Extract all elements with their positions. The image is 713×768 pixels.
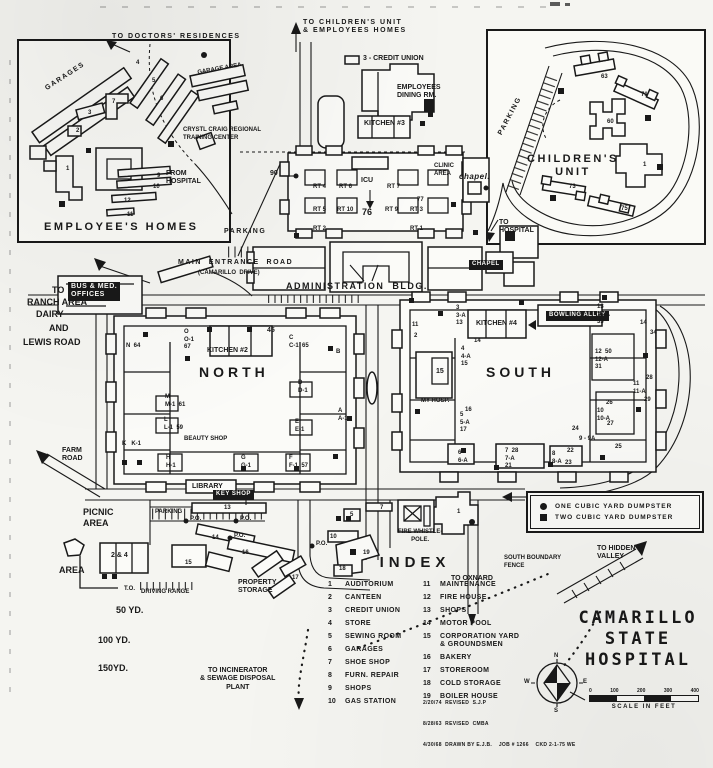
index-item-label: FURN. REPAIR (345, 672, 420, 680)
label-administration-bldg: ADMINISTRATION BLDG. (286, 281, 428, 292)
map-label: F F-1 57 (289, 455, 308, 470)
map-label: 4 4-A 15 (461, 346, 471, 369)
map-label: 26 (606, 400, 613, 408)
map-label: 25 (615, 444, 622, 452)
map-label: M M-1 61 (165, 394, 185, 409)
index-column-1: 1AUDITORIUM2CANTEEN3CREDIT UNION4STORE5S… (328, 581, 420, 711)
index-item: 5SEWING ROOM (328, 633, 420, 641)
label-driving-range: DRIVING RANGE (141, 589, 189, 597)
map-label: 8 8-A (552, 451, 562, 466)
map-label: 11 11-A (633, 381, 646, 396)
label-50yd: 50 YD. (116, 605, 143, 616)
hospital-site-map: TO DOCTORS' RESIDENCESGARAGESGARAGE AREA… (0, 0, 713, 768)
label-bus-med-offices: BUS & MED. OFFICES (68, 282, 120, 301)
map-label: 15 (436, 368, 444, 376)
index-item-number: 17 (423, 667, 438, 675)
map-label: 11 (127, 212, 133, 220)
index-item-number: 7 (328, 659, 343, 667)
map-label: B (336, 349, 340, 357)
label-kitchen-3: KITCHEN #3 (364, 120, 405, 128)
map-label: 27 (607, 421, 614, 429)
map-label: 28 (646, 375, 653, 383)
map-label: TO (52, 285, 64, 296)
map-label: 77 (417, 197, 424, 205)
map-label: T.O. (124, 586, 135, 594)
label-my-hosp: MY HOSP. (421, 398, 449, 406)
label-area: AREA (59, 565, 85, 576)
label-chapel: CHAPEL (469, 260, 503, 270)
map-title-line: HOSPITAL (564, 650, 712, 671)
map-label: RT 9 (385, 207, 398, 215)
map-label: P.O. (234, 533, 245, 541)
map-label: 5 (350, 512, 353, 520)
label-to-incinerator: TO INCINERATOR & SEWAGE DISPOSAL PLANT (200, 667, 275, 692)
map-label: 10 (330, 534, 337, 542)
map-label: D D-1 (298, 380, 308, 395)
index-item: 4STORE (328, 620, 420, 628)
index-item-number: 4 (328, 620, 343, 628)
label-employees-homes: EMPLOYEE'S HOMES (44, 221, 198, 234)
label-to-childrens-unit: TO CHILDREN'S UNIT & EMPLOYEES HOMES (303, 19, 407, 36)
index-item-label: BAKERY (440, 654, 527, 662)
label-icu: ICU (361, 177, 373, 185)
index-item-label: GARAGES (345, 646, 420, 654)
scale-tick: 300 (664, 688, 672, 694)
map-label: AND (49, 323, 69, 334)
map-label: 73 (569, 184, 576, 192)
map-label: RT 3 (410, 207, 423, 215)
map-label: 45 (267, 327, 275, 335)
index-item-number: 3 (328, 607, 343, 615)
revision-notes: 2/20/74 REVISED S.J.P 8/28/63 REVISED CM… (423, 686, 623, 763)
map-label: RT 2 (313, 226, 326, 234)
label-north-quad: NORTH (199, 364, 269, 381)
map-label: P.O. (240, 516, 251, 524)
index-item-number: 1 (328, 581, 343, 589)
map-label: 6 (160, 96, 163, 104)
map-label: 10 (153, 184, 160, 192)
index-item-number: 9 (328, 685, 343, 693)
index-item-label: AUDITORIUM (345, 581, 420, 589)
label-property-storage: PROPERTY STORAGE (238, 579, 277, 596)
map-label: P.O. (316, 541, 327, 549)
map-label: RT 7 (387, 184, 400, 192)
map-label: 4 (136, 60, 139, 68)
revision-line: 8/28/63 REVISED CMBA (423, 721, 623, 728)
map-label: 7 (112, 99, 115, 107)
index-item-label: FIRE HOUSE (440, 594, 527, 602)
label-picnic-area: PICNIC AREA (83, 507, 114, 528)
label-south-quad: SOUTH (486, 364, 555, 381)
map-label: 7 (380, 505, 383, 513)
map-label: H H-1 (166, 455, 176, 470)
label-main-entrance-road: MAIN ENTRANCE ROAD (178, 259, 293, 267)
index-item-label: SHOE SHOP (345, 659, 420, 667)
map-label: 9 (157, 173, 160, 181)
scale-tick: 200 (637, 688, 645, 694)
map-label: 3 3-A 13 (456, 305, 466, 328)
index-item: 7SHOE SHOP (328, 659, 420, 667)
index-item-label: SHOPS (345, 685, 420, 693)
label-garage-area: GARAGE AREA (197, 62, 242, 77)
index-heading: INDEX (330, 554, 500, 571)
index-item: 11MAINTENANCE (423, 581, 527, 589)
map-label: 14 (474, 338, 481, 346)
map-label: 3 (88, 110, 91, 118)
map-title-line: CAMARILLO (564, 608, 712, 629)
index-item-number: 5 (328, 633, 343, 641)
map-label: 5 5-A 17 (460, 412, 470, 435)
map-label: A A-1 (338, 408, 348, 423)
map-label: RT 4 (313, 184, 326, 192)
index-item-number: 13 (423, 607, 438, 615)
map-label: C C-1 65 (289, 335, 309, 350)
map-label: 11 (412, 322, 418, 330)
one-cubic-yard-dumpster-icon (540, 503, 547, 510)
map-label: 60 (607, 119, 614, 127)
map-title-line: STATE (564, 629, 712, 650)
map-label: PARKING (155, 509, 182, 517)
index-item-number: 8 (328, 672, 343, 680)
index-item-label: GAS STATION (345, 698, 420, 706)
label-parking-childrens: PARKING (497, 96, 524, 137)
label-lewis-road: LEWIS ROAD (23, 337, 81, 348)
map-label: RT 6 (339, 184, 352, 192)
label-100yd: 100 YD. (98, 635, 130, 646)
index-item: 6GARAGES (328, 646, 420, 654)
label-bldg-90: 90 (270, 170, 278, 178)
index-item-label: STOREROOM (440, 667, 527, 675)
index-item: 15CORPORATION YARD & GROUNDSMEN (423, 633, 527, 649)
map-label: 2 & 4 (111, 552, 128, 560)
map-label: 76 (362, 207, 372, 218)
map-label: 14 (640, 320, 647, 328)
index-item-label: MOTOR POOL (440, 620, 527, 628)
map-label: 13 (224, 505, 231, 513)
label-childrens-unit: CHILDREN'S UNIT (527, 153, 619, 179)
index-item-label: STORE (345, 620, 420, 628)
map-label: RT 1 (410, 226, 423, 234)
map-label: 5 (152, 78, 155, 86)
map-label: 1 (643, 162, 646, 170)
map-label: 22 (567, 448, 574, 456)
map-label: 13 13-A 33 (597, 304, 610, 327)
label-fire-whistle-pole: FIRE WHISTLE- POLE. (398, 529, 442, 544)
map-label: 24 (572, 426, 579, 434)
index-item-number: 12 (423, 594, 438, 602)
label-south-boundary-fence: SOUTH BOUNDARY FENCE (504, 555, 561, 570)
map-label: 2 (414, 333, 417, 341)
map-label: RT 10 (337, 207, 353, 215)
compass-w: W (524, 679, 530, 685)
map-label: O O-1 67 (184, 329, 194, 352)
legend-item: ONE CUBIC YARD DUMPSTER (540, 503, 690, 510)
map-label: 1 (457, 509, 460, 517)
map-label: 12 (124, 198, 131, 206)
index-item-label: CANTEEN (345, 594, 420, 602)
legend-item-label: ONE CUBIC YARD DUMPSTER (555, 503, 672, 510)
index-item: 17STOREROOM (423, 667, 527, 675)
label-to-hospital: TO HOSPITAL (499, 219, 534, 236)
index-item-number: 11 (423, 581, 438, 589)
index-item: 14MOTOR POOL (423, 620, 527, 628)
map-label: 7 28 7-A 21 (505, 448, 518, 471)
index-item: 8FURN. REPAIR (328, 672, 420, 680)
label-garages: GARAGES (44, 61, 87, 93)
index-item: 10GAS STATION (328, 698, 420, 706)
legend-item: TWO CUBIC YARD DUMPSTER (540, 514, 690, 521)
label-to-hidden-valley: TO HIDDEN VALLEY (597, 545, 635, 562)
map-label: 75 (621, 206, 628, 214)
index-item-label: SHOPS (440, 607, 527, 615)
label-credit-union: 3 - CREDIT UNION (363, 55, 424, 63)
label-employees-dining: EMPLOYEES DINING RM. (397, 84, 441, 101)
index-item-number: 15 (423, 633, 438, 649)
index-item-label: CREDIT UNION (345, 607, 420, 615)
map-label: P.O. (190, 516, 201, 524)
revision-line: 2/20/74 REVISED S.J.P (423, 700, 623, 707)
map-label: E E-1 (295, 419, 304, 434)
index-item: 2CANTEEN (328, 594, 420, 602)
index-item: 13SHOPS (423, 607, 527, 615)
label-kitchen-4: KITCHEN #4 (476, 320, 517, 328)
label-to-doctors-residences: TO DOCTORS' RESIDENCES (112, 33, 241, 41)
label-from-hospital: FROM HOSPITAL (166, 170, 201, 187)
label-kitchen-2: KITCHEN #2 (207, 347, 248, 355)
map-label: G G-1 (241, 455, 251, 470)
label-beauty-shop: BEAUTY SHOP (184, 436, 227, 444)
index-item-number: 2 (328, 594, 343, 602)
label-farm-road: FARM ROAD (62, 447, 83, 464)
index-item-number: 16 (423, 654, 438, 662)
map-label: 17 (292, 575, 299, 583)
label-parking-main: PARKING (224, 228, 266, 236)
map-label: DAIRY (36, 309, 64, 320)
index-item: 16BAKERY (423, 654, 527, 662)
label-camarillo-drive: (CAMARILLO DRIVE) (198, 270, 260, 278)
scale-tick: 400 (691, 688, 699, 694)
map-label: K K-1 (122, 441, 141, 449)
compass-n: N (554, 653, 558, 659)
legend-box: ONE CUBIC YARD DUMPSTER TWO CUBIC YARD D… (526, 491, 704, 533)
map-label: 63 (601, 74, 608, 82)
map-label: 12 50 12-A 31 (595, 349, 612, 372)
map-label: 14 (212, 535, 219, 543)
index-item-number: 10 (328, 698, 343, 706)
map-label: N 64 (126, 343, 140, 351)
index-item: 3CREDIT UNION (328, 607, 420, 615)
revision-line: 4/30/68 DRAWN BY E.J.B. JOB # 1266 CKD 2… (423, 742, 623, 749)
map-title: CAMARILLO STATE HOSPITAL (564, 608, 712, 671)
index-item-label: CORPORATION YARD & GROUNDSMEN (440, 633, 527, 649)
two-cubic-yard-dumpster-icon (540, 514, 547, 521)
map-label: 6 6-A (458, 450, 468, 465)
map-label: 1 (66, 166, 69, 174)
index-item: 12FIRE HOUSE (423, 594, 527, 602)
map-label: 34 (650, 330, 657, 338)
index-item-number: 14 (423, 620, 438, 628)
compass-e: E (583, 679, 587, 685)
map-label: 9 - 9A (579, 436, 595, 444)
map-label: L L-1 59 (164, 417, 183, 432)
label-key-shop: KEY SHOP (213, 490, 254, 500)
label-clinic-area: CLINIC AREA (434, 163, 454, 178)
map-label: 29 (644, 397, 651, 405)
label-150yd: 150YD. (98, 663, 128, 674)
map-label: RT 5 (313, 207, 326, 215)
index-item-number: 6 (328, 646, 343, 654)
index-item: 1AUDITORIUM (328, 581, 420, 589)
map-label: 23 (565, 460, 572, 468)
index-item-label: SEWING ROOM (345, 633, 420, 641)
index-item-label: MAINTENANCE (440, 581, 527, 589)
label-training-center: CRYSTL CRAIG REGIONAL TRAINING CENTER (183, 127, 261, 142)
map-label: 15 (185, 560, 192, 568)
legend-item-label: TWO CUBIC YARD DUMPSTER (555, 514, 673, 521)
label-chapel-small: chapel. (459, 172, 490, 181)
map-label: 2 (76, 128, 79, 136)
map-label: 16 (242, 550, 249, 558)
map-label: 71 (641, 92, 648, 100)
index-item: 9SHOPS (328, 685, 420, 693)
